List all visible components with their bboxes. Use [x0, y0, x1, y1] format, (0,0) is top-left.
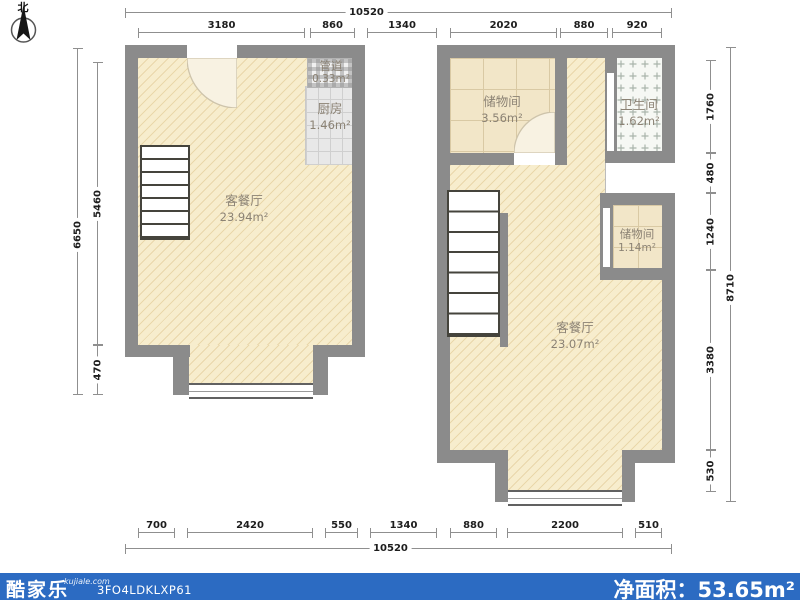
room-name: 储物间	[481, 94, 522, 110]
room-name: 储物间	[618, 227, 656, 241]
floor1-window	[189, 383, 313, 399]
floorplan-canvas: 北 客餐厅 23.94m² 厨房 1.46m² 管道 0.33m²	[0, 0, 800, 600]
wall-segment	[495, 450, 508, 502]
dim-label: 3180	[138, 20, 305, 31]
dim-label: 1760	[706, 90, 717, 124]
dim-bottom-seg: 700	[138, 532, 175, 533]
dim-label: 5460	[93, 187, 104, 221]
floor2-bay-floor	[508, 450, 622, 490]
dim-label: 510	[635, 520, 662, 531]
dim-right-seg: 1760	[710, 60, 711, 153]
dim-top-seg: 920	[612, 32, 662, 33]
wall-segment	[125, 45, 365, 58]
stair-rail-wall	[500, 213, 508, 347]
dim-top-seg: 1340	[367, 32, 437, 33]
dim-label: 2020	[450, 20, 557, 31]
room-area: 1.14m²	[618, 241, 656, 255]
room-label-storage1: 储物间 3.56m²	[481, 94, 522, 126]
dim-right-seg: 480	[710, 153, 711, 193]
wall-segment	[605, 151, 675, 163]
room-label-bathroom: 卫生间 1.62m²	[618, 97, 659, 129]
wall-segment	[352, 45, 365, 357]
storage2-sliding-door	[602, 207, 611, 268]
room-area: 0.33m²	[312, 73, 350, 86]
wall-segment	[662, 45, 675, 163]
room-area: 23.07m²	[551, 336, 600, 352]
north-compass-icon: 北	[3, 0, 47, 50]
dim-label: 860	[310, 20, 355, 31]
room-name: 客餐厅	[551, 320, 600, 336]
room-name: 卫生间	[618, 97, 659, 113]
dim-label: 1240	[706, 215, 717, 249]
dim-label: 880	[450, 520, 497, 531]
room-area: 23.94m²	[220, 209, 269, 225]
dim-label: 1340	[370, 520, 437, 531]
dim-label: 10520	[345, 7, 388, 18]
room-name: 厨房	[309, 101, 350, 117]
wall-segment	[600, 268, 675, 280]
dim-bottom-seg: 510	[635, 532, 662, 533]
dim-label: 8710	[726, 271, 737, 305]
watermark-bar: 酷家乐 kujiale.com 3FO4LDKLXP61 净面积：53.65m²	[0, 573, 800, 600]
plan-code: 3FO4LDKLXP61	[97, 583, 192, 597]
wall-segment	[173, 345, 189, 395]
dim-label: 880	[560, 20, 608, 31]
room-area: 3.56m²	[481, 110, 522, 126]
dim-left-seg: 5460	[97, 62, 98, 345]
dim-bottom-seg: 2420	[187, 532, 313, 533]
floor2-void-gap	[605, 163, 676, 193]
wall-segment	[622, 450, 635, 502]
dim-label: 700	[138, 520, 175, 531]
room-label-living2: 客餐厅 23.07m²	[551, 320, 600, 352]
floor1-stairs	[140, 145, 190, 240]
wall-segment	[125, 45, 138, 357]
dim-label: 530	[706, 458, 717, 485]
dim-bottom-seg: 2200	[507, 532, 623, 533]
dim-label: 3380	[706, 343, 717, 377]
net-area-value: 53.65m²	[697, 578, 795, 600]
floor2-stairs	[447, 190, 500, 337]
dim-label: 10520	[369, 543, 412, 554]
storage-door-opening	[514, 153, 555, 165]
room-label-living1: 客餐厅 23.94m²	[220, 193, 269, 225]
dim-label: 920	[612, 20, 662, 31]
room-label-storage2: 储物间 1.14m²	[618, 227, 656, 255]
dim-label: 470	[93, 357, 104, 384]
dim-top-seg: 3180	[138, 32, 305, 33]
dim-label: 6650	[73, 218, 84, 252]
floor1-bay-floor	[189, 345, 313, 385]
wall-segment	[662, 193, 675, 463]
room-name: 管道	[312, 60, 350, 73]
dim-top-total: 10520	[125, 12, 672, 13]
entry-door-swing-icon	[187, 58, 237, 108]
bathroom-sliding-door	[606, 72, 615, 152]
dim-right-seg: 530	[710, 450, 711, 492]
dim-label: 480	[706, 160, 717, 187]
room-label-duct: 管道 0.33m²	[312, 60, 350, 86]
dim-label: 1340	[367, 20, 437, 31]
brand-logo: 酷家乐	[6, 575, 69, 600]
dim-left-seg: 470	[97, 345, 98, 395]
dim-right-total: 8710	[730, 47, 731, 502]
room-label-kitchen: 厨房 1.46m²	[309, 101, 350, 133]
room-name: 客餐厅	[220, 193, 269, 209]
dim-top-seg: 860	[310, 32, 355, 33]
entry-door-opening	[187, 45, 237, 58]
dim-bottom-seg: 550	[325, 532, 358, 533]
dim-label: 550	[325, 520, 358, 531]
floor2-window	[508, 490, 622, 506]
dim-right-seg: 3380	[710, 270, 711, 450]
dim-right-seg: 1240	[710, 193, 711, 270]
dim-top-seg: 2020	[450, 32, 557, 33]
dim-label: 2420	[187, 520, 313, 531]
net-area: 净面积：53.65m²	[613, 574, 795, 600]
wall-segment	[555, 45, 567, 165]
dim-top-seg: 880	[560, 32, 608, 33]
dim-left-total: 6650	[77, 48, 78, 395]
dim-bottom-total: 10520	[125, 548, 672, 549]
wall-segment	[313, 345, 328, 395]
floor2-corridor-floor	[567, 58, 605, 165]
dim-label: 2200	[507, 520, 623, 531]
dim-bottom-seg: 1340	[370, 532, 437, 533]
room-area: 1.62m²	[618, 113, 659, 129]
net-area-label: 净面积：	[613, 578, 697, 600]
dim-bottom-seg: 880	[450, 532, 497, 533]
room-area: 1.46m²	[309, 117, 350, 133]
